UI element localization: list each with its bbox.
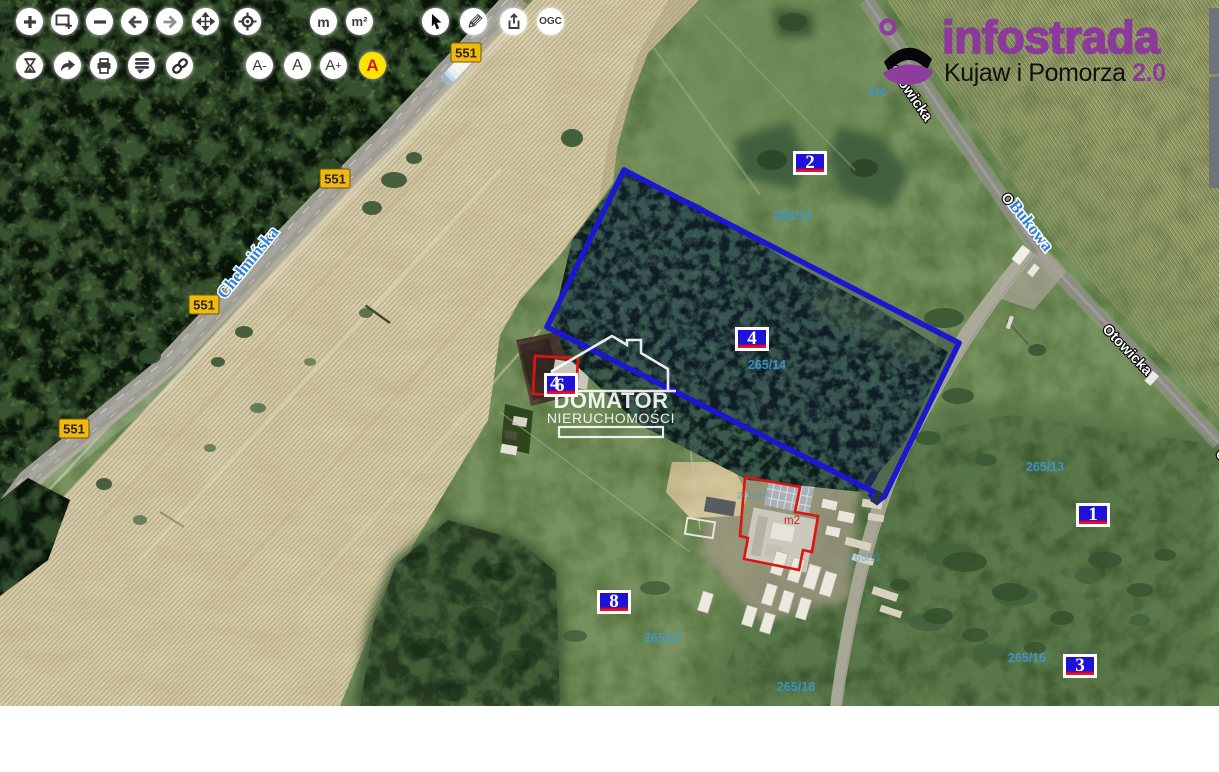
svg-text:265/16: 265/16: [1008, 651, 1046, 665]
svg-text:551: 551: [63, 422, 85, 437]
svg-text:265/13: 265/13: [1026, 460, 1064, 474]
svg-text:265/12: 265/12: [774, 209, 812, 223]
svg-text:551: 551: [193, 298, 215, 313]
svg-text:265/17: 265/17: [644, 631, 682, 645]
svg-text:m2: m2: [784, 515, 800, 527]
svg-text:551: 551: [324, 172, 346, 187]
svg-text:265/14: 265/14: [748, 358, 786, 372]
svg-text:551: 551: [455, 46, 477, 61]
svg-text:265/10: 265/10: [737, 490, 769, 502]
svg-text:265/11: 265/11: [848, 552, 881, 564]
svg-text:265/18: 265/18: [777, 680, 815, 694]
svg-text:NIERUCHOMOŚCI: NIERUCHOMOŚCI: [547, 409, 675, 426]
